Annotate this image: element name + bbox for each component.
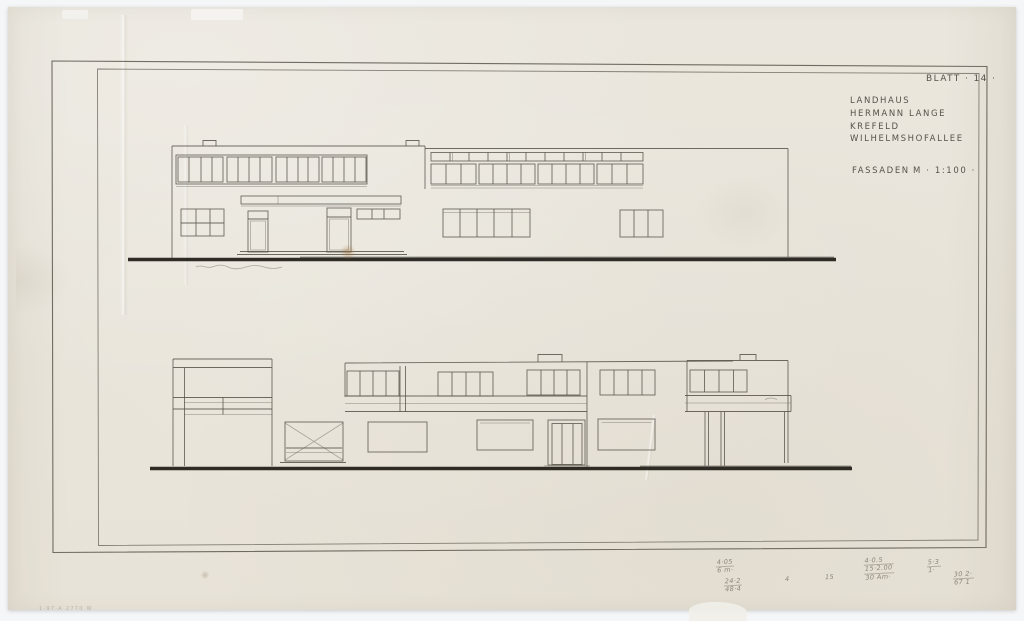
ground-floor-window-left [181,209,224,236]
lower-elevation [150,355,852,469]
entrance-door [544,420,590,466]
scale-label: M · 1:100 · [913,166,976,176]
project-street-line: WILHELMSHOFALLEE [850,134,964,144]
pencil-calculation: 4 [785,576,790,584]
roof-step [740,355,756,361]
ground-floor-window-mid [357,209,400,219]
archive-corner-mark: 1·97·A 2770 W [39,606,93,612]
terrace-parapet [280,422,346,463]
calc-line-3: 30 Am· [864,573,894,582]
upper-floor-window [690,370,747,392]
pencil-calculation: 30 2· 67 1 [953,570,974,587]
pencil-calculation: 15 [825,574,834,582]
drawing-type-label: FASSADEN [852,166,910,176]
border-frame [52,61,987,553]
fraction-denominator: 48·4 [724,586,742,594]
ground-floor-openings [368,419,655,466]
roof-chimney [203,141,419,147]
entrance-door-1 [248,211,268,252]
ground-floor-window-right [620,210,663,237]
clerestory-band [431,153,643,162]
fraction-denominator: 1· [927,567,941,575]
lower-center-block [345,355,733,468]
roof-chimney [538,355,562,363]
scan-background: { "colors": { "background": "#f5f6f8", "… [0,0,1024,614]
entrance-canopy [241,196,401,206]
pencil-calculation: 4·0.5 15·2.00 30 Am· [863,556,894,582]
entrance-door-2 [327,208,351,252]
balcony-band-center [345,396,587,412]
fraction-denominator: 67 1 [953,579,974,588]
upper-elevation [128,141,836,269]
lower-right-block [685,355,791,467]
pencil-calculation: 4·05 6 m· [716,559,735,576]
project-city-line: KREFELD [850,122,900,132]
balcony-band-left [173,398,272,415]
sheet-number-label: BLATT · 14 · [926,74,996,84]
balcony-band-right [685,396,791,412]
upper-window-band [176,155,367,187]
entrance-steps [237,252,407,255]
upper-right-wing [425,149,788,258]
ground-floor-window-wide [443,209,530,237]
project-title-line2: HERMANN LANGE [850,109,946,119]
pencil-squiggle [196,265,282,269]
pencil-calculation: 5·3 1· [927,559,941,576]
pencil-calculation: 24·2 48·4 [724,578,743,595]
project-title-line1: LANDHAUS [850,96,910,106]
ribbon-window-band [431,164,643,188]
fraction-denominator: 6 m· [716,567,735,575]
lower-left-block [173,359,272,466]
upper-main-block [172,141,425,259]
upper-floor-windows [347,366,655,412]
pilotis-columns [705,412,785,467]
paper-sheet: BLATT · 14 · LANDHAUS HERMANN LANGE KREF… [8,7,1016,610]
